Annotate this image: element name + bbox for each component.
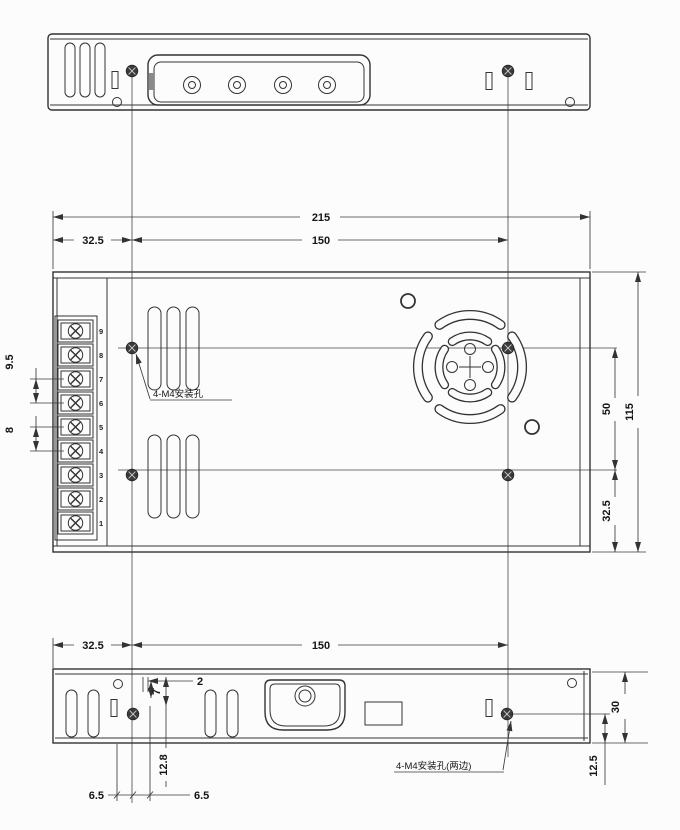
terminal-number: 9 bbox=[99, 327, 103, 336]
dim-terminal-pitch-b: 8 bbox=[4, 427, 16, 433]
dim-terminal-pitch-a: 9.5 bbox=[4, 354, 16, 369]
vent-slot bbox=[148, 307, 161, 390]
engineering-drawing-canvas: 9 8 7 6 5 4 3 2 1 bbox=[0, 0, 680, 830]
latch-slot bbox=[526, 73, 532, 90]
latch-slot bbox=[486, 700, 492, 717]
vent-slot bbox=[205, 690, 216, 737]
vent-slot bbox=[167, 435, 180, 518]
dim-detail-6-5-right: 6.5 bbox=[194, 790, 209, 802]
output-port bbox=[229, 77, 246, 94]
dim-detail-6-5-left: 6.5 bbox=[89, 790, 104, 802]
centerlines bbox=[118, 77, 617, 803]
vent-slot bbox=[227, 690, 238, 737]
vent-slot bbox=[186, 435, 199, 518]
dim-overall-depth: 115 bbox=[624, 403, 636, 421]
terminal-number: 7 bbox=[99, 375, 103, 384]
mounting-hole bbox=[126, 469, 138, 481]
note-mounting-holes: 4-M4安装孔 bbox=[153, 388, 204, 400]
drawing-sheet: 9 8 7 6 5 4 3 2 1 bbox=[0, 0, 680, 830]
dim-edge-to-hole-x-top: 32.5 bbox=[82, 235, 103, 247]
mounting-screw bbox=[126, 65, 138, 77]
note-mounting-holes-sides: 4-M4安装孔(两边) bbox=[396, 760, 471, 772]
vent-slot bbox=[66, 690, 77, 737]
screw-hole bbox=[114, 680, 123, 689]
terminal-number: 2 bbox=[99, 495, 103, 504]
mounting-hole bbox=[502, 469, 514, 481]
terminal-number: 6 bbox=[99, 399, 103, 408]
fan-cutout bbox=[418, 315, 522, 419]
terminal-number: 3 bbox=[99, 471, 103, 480]
mounting-hole bbox=[502, 342, 514, 354]
mounting-hole bbox=[126, 342, 138, 354]
dim-hole-span-x-top: 150 bbox=[312, 235, 330, 247]
vent-slot bbox=[167, 307, 180, 390]
dim-edge-to-hole-y: 32.5 bbox=[601, 500, 613, 521]
dim-overall-width: 215 bbox=[312, 212, 330, 224]
dim-detail-12-8: 12.8 bbox=[158, 754, 170, 775]
vent-slot bbox=[148, 435, 161, 518]
screw-hole bbox=[525, 420, 539, 434]
connector-recess bbox=[148, 55, 370, 105]
latch-slot bbox=[111, 700, 117, 717]
dim-hole-height: 12.5 bbox=[588, 755, 600, 776]
output-port bbox=[319, 77, 336, 94]
terminal-number: 1 bbox=[99, 519, 103, 528]
dim-edge-to-hole-x-bottom: 32.5 bbox=[82, 640, 103, 652]
mounting-screw bbox=[127, 708, 139, 720]
output-port bbox=[275, 77, 292, 94]
vent-slot bbox=[186, 307, 199, 390]
screw-hole bbox=[401, 294, 415, 308]
ac-inlet-recess bbox=[265, 680, 345, 730]
terminal-number: 8 bbox=[99, 351, 103, 360]
vent-slot bbox=[88, 690, 99, 737]
dimensions: 215 150 32.5 9.5 8 50 32.5 115 32.5 150 … bbox=[4, 211, 648, 802]
latch-slot bbox=[486, 73, 492, 90]
dim-detail-7: 7 bbox=[151, 689, 163, 695]
plan-view: 9 8 7 6 5 4 3 2 1 bbox=[53, 272, 590, 552]
dim-detail-2: 2 bbox=[197, 676, 203, 688]
dim-hole-span-y: 50 bbox=[601, 403, 613, 415]
vent-slot bbox=[95, 43, 105, 97]
screw-hole bbox=[568, 679, 577, 688]
terminal-block: 9 8 7 6 5 4 3 2 1 bbox=[55, 316, 104, 540]
mounting-screw bbox=[501, 708, 513, 720]
latch-slot bbox=[112, 72, 118, 89]
dim-hole-span-x-bottom: 150 bbox=[312, 640, 330, 652]
dim-side-height: 30 bbox=[610, 701, 622, 713]
mounting-screw bbox=[502, 65, 514, 77]
terminal-number: 5 bbox=[99, 423, 103, 432]
top-side-view bbox=[48, 34, 590, 110]
vent-slot bbox=[65, 43, 75, 97]
output-port bbox=[184, 77, 201, 94]
switch-cutout bbox=[365, 702, 402, 725]
terminal-number: 4 bbox=[99, 447, 104, 456]
vent-slot bbox=[80, 43, 90, 97]
